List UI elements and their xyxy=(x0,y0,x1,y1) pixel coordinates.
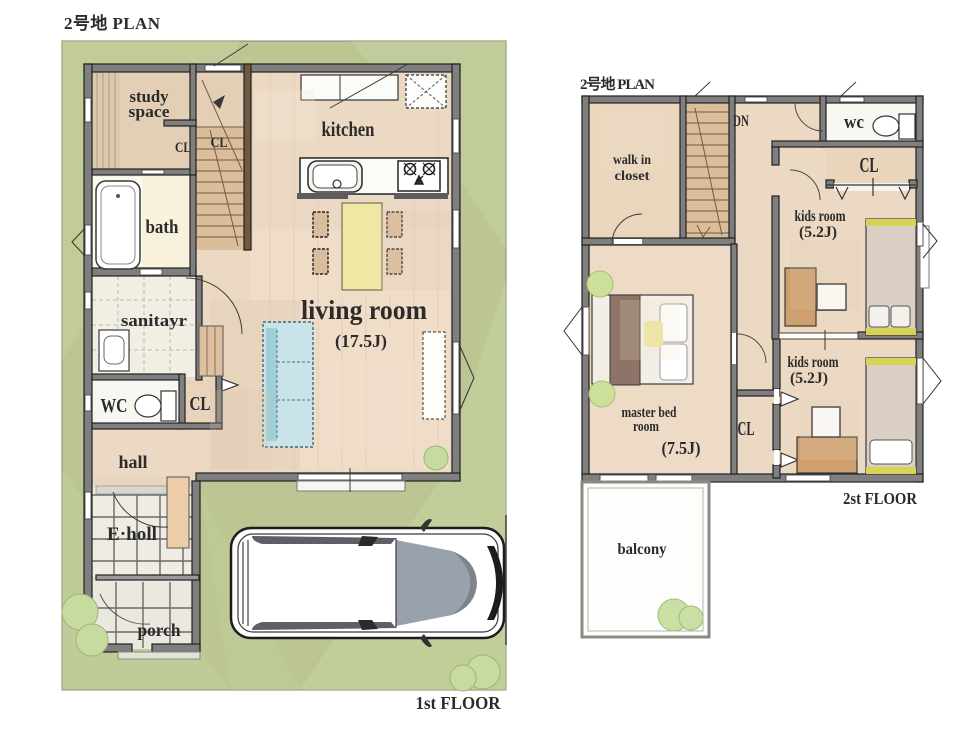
svg-text:sanitayr: sanitayr xyxy=(121,311,188,330)
svg-text:2st FLOOR: 2st FLOOR xyxy=(843,489,918,508)
svg-text:closet: closet xyxy=(615,169,650,184)
svg-text:CL: CL xyxy=(211,135,228,151)
svg-text:CL: CL xyxy=(738,418,755,440)
svg-text:E·holl: E·holl xyxy=(107,524,157,545)
svg-text:porch: porch xyxy=(138,620,181,640)
svg-text:(7.5J): (7.5J) xyxy=(662,438,701,459)
svg-text:walk in: walk in xyxy=(613,153,651,168)
svg-text:1st FLOOR: 1st FLOOR xyxy=(416,693,502,713)
svg-text:wc: wc xyxy=(844,112,864,133)
svg-text:space: space xyxy=(129,102,170,121)
svg-text:kitchen: kitchen xyxy=(322,117,375,141)
svg-text:(5.2J): (5.2J) xyxy=(799,224,837,241)
svg-text:kids room: kids room xyxy=(795,208,846,225)
svg-text:(5.2J): (5.2J) xyxy=(790,370,828,387)
svg-text:CL: CL xyxy=(860,153,879,177)
svg-text:DN: DN xyxy=(733,113,749,130)
svg-text:2号地 PLAN: 2号地 PLAN xyxy=(580,75,655,93)
svg-text:kids room: kids room xyxy=(788,354,839,371)
svg-text:room: room xyxy=(633,419,659,435)
svg-text:CL: CL xyxy=(190,393,211,415)
svg-text:living room: living room xyxy=(301,295,427,325)
svg-text:WC: WC xyxy=(101,395,128,417)
svg-text:hall: hall xyxy=(119,452,148,472)
svg-text:(17.5J): (17.5J) xyxy=(335,331,387,352)
svg-text:CL: CL xyxy=(175,140,191,156)
svg-text:bath: bath xyxy=(146,217,179,238)
svg-text:2号地 PLAN: 2号地 PLAN xyxy=(64,13,161,33)
svg-text:balcony: balcony xyxy=(618,541,667,558)
